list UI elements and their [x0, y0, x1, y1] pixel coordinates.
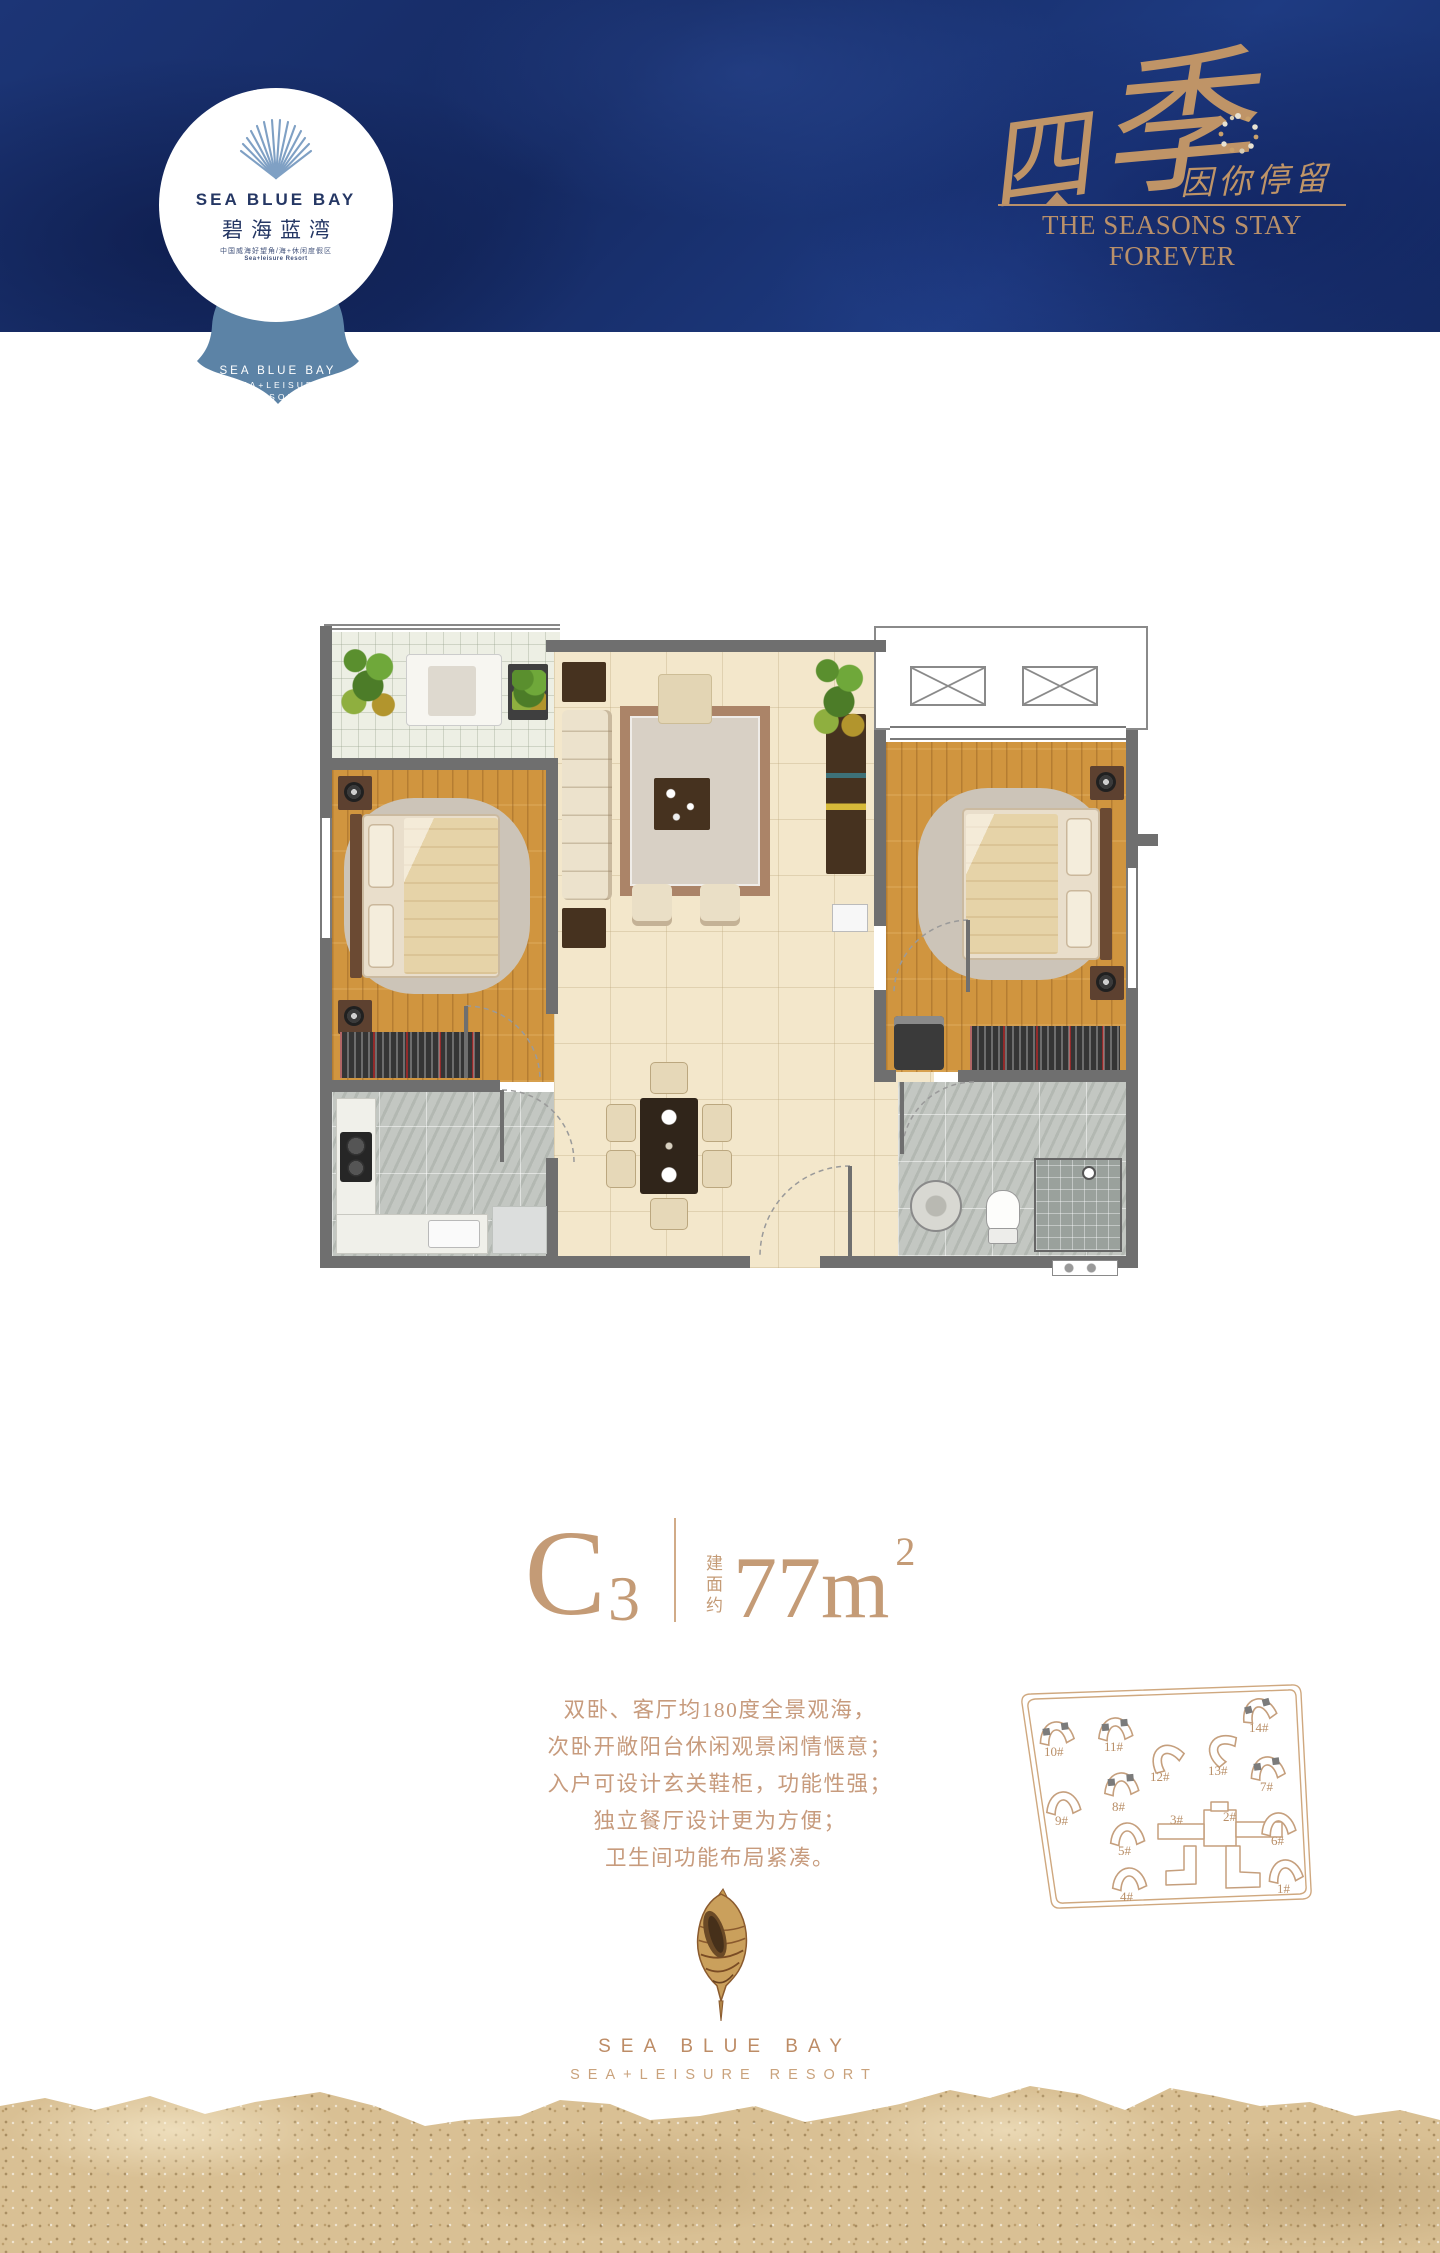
living-armchair-2: [700, 884, 740, 926]
unit-code-letter: C: [525, 1524, 606, 1624]
slogan-english: THE SEASONS STAY FOREVER: [978, 210, 1366, 272]
siteplan-building-label: 7#: [1260, 1779, 1274, 1794]
balcony-plant: [336, 644, 400, 720]
kitchen-cooktop: [340, 1132, 372, 1182]
living-coffee-table: [654, 778, 710, 830]
balcony-table-plant: [512, 670, 546, 710]
living-console: [832, 904, 868, 932]
dots-ring-decoration: [1212, 108, 1264, 160]
siteplan-building-label: 3#: [1170, 1812, 1184, 1827]
bedroomL-pillow-1: [368, 824, 394, 888]
siteplan-building-label: 6#: [1271, 1833, 1285, 1848]
bedroomR-blanket: [966, 814, 1058, 954]
living-side-table-bottom: [562, 908, 606, 948]
siteplan-building-label: 1#: [1277, 1881, 1291, 1896]
siteplan-building-label: 4#: [1120, 1889, 1134, 1904]
living-ottoman: [658, 674, 712, 724]
bedroomR-wardrobe: [970, 1026, 1120, 1070]
siteplan-building: [1045, 1791, 1081, 1816]
balcony-lounge-cushion: [428, 666, 476, 716]
entry-door: [756, 1162, 852, 1258]
utility-box: [1052, 1260, 1118, 1276]
siteplan: 10#11#14#12#13#7#8#9#5#6#3#2#4#1#: [998, 1652, 1328, 1922]
siteplan-building: [1038, 1720, 1075, 1747]
unit-code-digit: 3: [608, 1573, 640, 1624]
bedroomR-headboard: [1100, 808, 1112, 960]
bedroomR-nightstand-top: [1090, 766, 1124, 800]
corridor-shaft-box-1: [910, 666, 986, 706]
siteplan-building-label: 11#: [1104, 1739, 1124, 1754]
bedroomL-headboard: [350, 814, 362, 978]
area-label-char: 约: [706, 1597, 723, 1614]
kitchen-sink: [428, 1220, 480, 1248]
bedroomL-pillow-2: [368, 904, 394, 968]
slogan-triangle-icon: [1046, 192, 1068, 204]
floorplan: [310, 618, 1160, 1278]
siteplan-building-label: 13#: [1208, 1763, 1228, 1778]
dining-chair-bottom: [650, 1198, 688, 1230]
bedroomR-nightstand-bottom: [1090, 966, 1124, 1000]
dining-chair-top: [650, 1062, 688, 1094]
badge-line1: SEA BLUE BAY: [220, 365, 337, 377]
siteplan-building: [1097, 1717, 1133, 1742]
wall-kitchen-dining: [546, 1158, 558, 1268]
fan-shell-icon: [237, 114, 315, 182]
area-unit: m: [821, 1555, 889, 1624]
wall-bedroomR-bath: [958, 1070, 1138, 1082]
conch-shell-icon: [684, 1888, 756, 2024]
wall-bedroomL-kitchen: [320, 1080, 500, 1092]
living-sofa: [562, 710, 612, 900]
wall-left: [320, 626, 332, 1268]
bath-basin: [910, 1180, 962, 1232]
shower-area: [1034, 1158, 1122, 1252]
wall-balcony-sill: [324, 758, 554, 770]
slogan-divider: [998, 204, 1346, 206]
wall-right: [1126, 730, 1138, 1268]
logo-brand-cn: 碧海蓝湾: [159, 214, 393, 244]
dining-chair-left-2: [606, 1150, 636, 1188]
wall-living-bedroomR-top: [874, 730, 886, 926]
logo-tagline-en: Sea+leisure Resort: [159, 256, 393, 262]
area-value: 77: [733, 1555, 821, 1624]
footer-resort-line: SEA+LEISURE RESORT: [0, 2067, 1440, 2083]
dining-chair-left-1: [606, 1104, 636, 1142]
washing-machine: [894, 1016, 944, 1070]
logo-circle: SEA BLUE BAY 碧海蓝湾 中国威海好望角/海+休闲度假区 Sea+le…: [159, 88, 393, 322]
unit-area-row: C 3 建 面 约 77 m 2: [0, 1518, 1440, 1624]
area-label-char: 建: [706, 1555, 723, 1572]
living-armchair-1: [632, 884, 672, 926]
wall-right-stub: [1138, 834, 1158, 846]
balcony-railing: [324, 624, 560, 630]
siteplan-building: [1111, 1867, 1146, 1891]
siteplan-building-label: 12#: [1150, 1769, 1170, 1784]
bathroom-door: [900, 1080, 976, 1156]
flyer-page: 四 季 因你停留 THE SEASONS STAY FOREVER SEA BL…: [0, 0, 1440, 2253]
area-label-char: 面: [706, 1576, 723, 1593]
wall-living-bedroomR-bottom: [874, 990, 886, 1082]
kitchen-mat: [492, 1206, 547, 1254]
bedroomL-blanket: [404, 818, 498, 974]
bedroomL-nightstand-bottom: [338, 1000, 372, 1034]
sand-texture: [0, 2078, 1440, 2253]
wall-bottom-left: [320, 1256, 750, 1268]
badge-line3: RESORT: [251, 392, 304, 402]
bedroomR-door: [890, 918, 970, 994]
logo-brand-en: SEA BLUE BAY: [159, 190, 393, 210]
living-plant: [810, 650, 868, 744]
area-divider: [674, 1518, 676, 1622]
kitchen-door: [500, 1088, 576, 1164]
window-bedroomL: [320, 818, 332, 938]
area-label: 建 面 约: [706, 1555, 723, 1614]
bedroomL-wardrobe: [340, 1032, 480, 1078]
siteplan-building: [1103, 1772, 1139, 1797]
bedroomL-door: [464, 1004, 546, 1080]
bedroomR-pillow-2: [1066, 890, 1092, 948]
dining-chair-right-2: [702, 1150, 732, 1188]
living-side-table-top: [562, 662, 606, 702]
siteplan-building-label: 5#: [1118, 1843, 1132, 1858]
siteplan-building-label: 8#: [1112, 1799, 1126, 1814]
shower-head: [1082, 1166, 1096, 1180]
badge-line2: SEA+LEISURE: [232, 380, 323, 390]
slogan-stamp: 因你停留: [1179, 151, 1333, 204]
window-bedroomR: [890, 726, 1126, 740]
corridor-shaft-box-2: [1022, 666, 1098, 706]
wall-bath-left: [886, 1070, 896, 1082]
siteplan-building-label: 9#: [1055, 1813, 1069, 1828]
dining-chair-right-1: [702, 1104, 732, 1142]
area-exponent: 2: [895, 1532, 915, 1572]
wall-bedroomL-living: [546, 758, 558, 1014]
siteplan-building-label: 10#: [1044, 1744, 1064, 1759]
dining-table: [640, 1098, 698, 1194]
siteplan-building-label: 14#: [1249, 1720, 1269, 1735]
footer-brand: SEA BLUE BAY: [0, 2036, 1440, 2058]
toilet-tank: [988, 1228, 1018, 1244]
bedroomL-nightstand-top: [338, 776, 372, 810]
window-bedroomR-side: [1126, 868, 1138, 988]
bedroomR-pillow-1: [1066, 818, 1092, 876]
siteplan-building: [1249, 1755, 1286, 1782]
logo-tagline-cn: 中国威海好望角/海+休闲度假区: [159, 246, 393, 256]
siteplan-building-label: 2#: [1223, 1809, 1237, 1824]
